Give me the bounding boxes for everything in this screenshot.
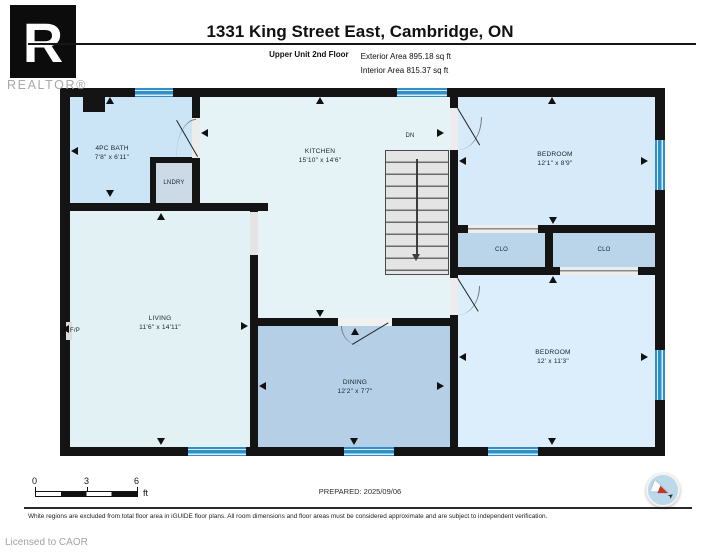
bath-label: 4PC BATH 7'8" x 6'11": [52, 145, 172, 163]
bedroom-top-window: [655, 140, 665, 190]
stairs-label: DN: [398, 132, 422, 140]
bedroom-bottom-right-window: [655, 350, 665, 400]
closet-left-label: CLO: [458, 246, 545, 254]
wall-bedroom-closet-a: [458, 225, 468, 233]
dimension-arrow-icon: [641, 157, 648, 165]
interior-area: Interior Area 815.37 sq ft: [361, 64, 451, 78]
dimension-arrow-icon: [549, 276, 557, 283]
compass-icon: [646, 473, 680, 507]
license-text: Licensed to CAOR: [5, 537, 88, 548]
dimension-arrow-icon: [259, 382, 266, 390]
dimension-arrow-icon: [106, 190, 114, 197]
dimension-arrow-icon: [201, 129, 208, 137]
wall-bath-right-a: [192, 96, 200, 118]
dimension-arrow-icon: [548, 97, 556, 104]
stairs-down-line: [416, 159, 418, 255]
wall-left: [60, 88, 70, 456]
dimension-arrow-icon: [641, 353, 648, 361]
kitchen-label: KITCHEN 15'10" x 14'6": [260, 148, 380, 166]
realtor-logo-word: REALTOR®: [7, 78, 87, 92]
wall-closet-bottom-a: [450, 267, 560, 275]
wall-center-b: [450, 150, 458, 278]
floor-plan-page: R REALTOR® 1331 King Street East, Cambri…: [0, 0, 720, 555]
dimension-arrow-icon: [106, 97, 114, 104]
dining-window: [344, 447, 394, 456]
footer-rule: [24, 507, 692, 509]
scale-bar-segments: [35, 491, 138, 497]
compass-needle: [643, 470, 682, 509]
wall-center-a: [450, 96, 458, 108]
bath-window: [135, 88, 173, 97]
living-label: LIVING 11'6" x 14'11": [100, 315, 220, 333]
closet-right-door-gap: [560, 267, 638, 275]
living-window: [188, 447, 246, 456]
subheader: Upper Unit 2nd Floor Exterior Area 895.1…: [0, 50, 720, 78]
bedroom-bottom-door-gap: [450, 278, 458, 315]
stairwell-window: [397, 88, 447, 97]
floor-label: Upper Unit 2nd Floor: [269, 50, 349, 78]
dimension-arrow-icon: [157, 438, 165, 445]
stairs-down-arrow-icon: [412, 254, 420, 261]
scale-tick-label: 6: [134, 476, 139, 486]
dimension-arrow-icon: [62, 325, 69, 333]
wall-notch: [83, 96, 105, 112]
bedroom-bottom-window: [488, 447, 538, 456]
wall-dining-top-b: [392, 318, 458, 326]
dimension-arrow-icon: [157, 213, 165, 220]
realtor-logo: R: [10, 5, 76, 78]
scale-tick-label: 3: [84, 476, 89, 486]
dimension-arrow-icon: [71, 147, 78, 155]
area-lines: Exterior Area 895.18 sq ft Interior Area…: [361, 50, 451, 78]
wall-center-c: [450, 315, 458, 455]
dimension-arrow-icon: [548, 438, 556, 445]
dimension-arrow-icon: [316, 310, 324, 317]
exterior-area: Exterior Area 895.18 sq ft: [361, 50, 451, 64]
scale-tick-label: 0: [32, 476, 37, 486]
living-opening: [250, 212, 258, 255]
laundry-label: LNDRY: [156, 179, 192, 187]
scale-unit: ft: [143, 488, 148, 498]
wall-living-right-b: [250, 255, 258, 455]
fireplace-label: F/P: [70, 327, 92, 335]
header-rule: [28, 43, 696, 45]
bedroom-top-label: BEDROOM 12'1" x 8'9": [495, 151, 615, 169]
wall-closet-mid: [545, 225, 553, 275]
wall-closet-bottom-b: [638, 267, 655, 275]
dimension-arrow-icon: [316, 97, 324, 104]
closet-left-door-gap: [468, 225, 538, 233]
bedroom-bottom-label: BEDROOM 12' x 11'3": [493, 349, 613, 367]
dimension-arrow-icon: [459, 353, 466, 361]
dimension-arrow-icon: [437, 382, 444, 390]
wall-bath-bottom: [60, 203, 268, 211]
dining-label: DINING 12'2" x 7'7": [295, 379, 415, 397]
dimension-arrow-icon: [549, 217, 557, 224]
wall-bedroom-closet-b: [538, 225, 655, 233]
dimension-arrow-icon: [241, 322, 248, 330]
dimension-arrow-icon: [437, 129, 444, 137]
closet-right-label: CLO: [553, 246, 655, 254]
dimension-arrow-icon: [459, 157, 466, 165]
wall-living-right-a: [250, 203, 258, 212]
bedroom-top-door-gap: [450, 108, 458, 150]
disclaimer-text: White regions are excluded from total fl…: [28, 513, 608, 520]
wall-dining-top-a: [254, 318, 338, 326]
dimension-arrow-icon: [351, 328, 359, 335]
page-title: 1331 King Street East, Cambridge, ON: [0, 22, 720, 42]
floor-plan: DN 4PC BATH 7'8" x 6'11" LNDRY KITCHEN 1…: [30, 85, 675, 460]
dimension-arrow-icon: [350, 438, 358, 445]
wall-bath-right-b: [192, 158, 200, 205]
prepared-date: PREPARED: 2025/09/06: [280, 487, 440, 496]
